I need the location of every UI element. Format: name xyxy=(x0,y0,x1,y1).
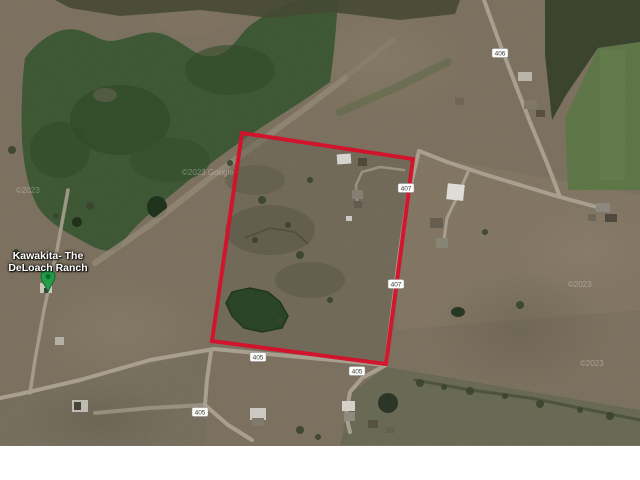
map-screenshot: ©2023 ©2023 Google ©2023 ©2023 406 407 4… xyxy=(0,0,640,480)
road-label: 407 xyxy=(388,280,404,289)
road-label: 405 xyxy=(250,353,266,362)
road-label-text: 405 xyxy=(253,354,264,361)
road-label: 405 xyxy=(192,408,208,417)
road-label-text: 406 xyxy=(495,50,506,57)
image-grain xyxy=(0,0,640,446)
letterbox-bottom xyxy=(0,446,640,480)
road-label-text: 405 xyxy=(195,409,206,416)
road-label: 407 xyxy=(398,184,414,193)
watermark: ©2023 Google xyxy=(182,168,234,177)
watermark: ©2023 xyxy=(16,186,40,195)
pin-icon-dot xyxy=(45,274,50,279)
road-label: 405 xyxy=(349,367,365,376)
road-label-text: 407 xyxy=(401,185,412,192)
satellite-map[interactable]: ©2023 ©2023 Google ©2023 ©2023 406 407 4… xyxy=(0,0,640,446)
road-label-text: 405 xyxy=(352,368,363,375)
road-label: 406 xyxy=(492,49,508,58)
watermark: ©2023 xyxy=(580,359,604,368)
watermark: ©2023 xyxy=(568,280,592,289)
road-label-text: 407 xyxy=(391,281,402,288)
